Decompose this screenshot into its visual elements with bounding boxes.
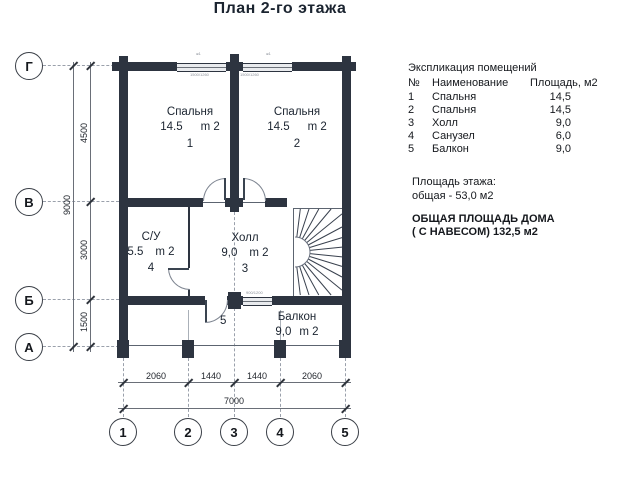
room-unit: m 2 (155, 245, 174, 260)
room-name: С/У (120, 230, 182, 245)
row-area: 6,0 (503, 130, 571, 142)
room-bedroom1: Спальня 14.5 m 2 1 (143, 105, 237, 152)
room-number-balcony: 5 (220, 315, 226, 327)
room-unit: m 2 (201, 120, 220, 135)
door-leaf-bedroom2 (243, 178, 245, 200)
axis-label: 3 (230, 425, 237, 440)
room-name: Спальня (143, 105, 237, 120)
dim-line-bottom-outer (118, 408, 351, 409)
axis-label: В (24, 195, 33, 210)
room-name: Спальня (250, 105, 344, 120)
row-name: Холл (432, 117, 458, 129)
room-balcony: Балкон 9,0 m 2 (262, 310, 332, 340)
row-num: 3 (408, 117, 414, 129)
room-bedroom2: Спальня 14.5 m 2 2 (250, 105, 344, 152)
dim-3000: 3000 (79, 234, 89, 266)
row-name: Спальня (432, 104, 476, 116)
axis-row-b: Б (15, 286, 43, 314)
axis-label: Б (24, 293, 33, 308)
door-threshold (203, 202, 225, 203)
axis-col-2: 2 (174, 418, 202, 446)
balcony-post (117, 340, 129, 358)
total-area-value: ( С НАВЕСОМ) 132,5 м2 (412, 226, 538, 238)
dim-4500: 4500 (79, 117, 89, 149)
room-unit: m 2 (299, 325, 318, 340)
dim-7000: 7000 (218, 396, 250, 406)
wall-top-segment (112, 62, 177, 71)
door-threshold (243, 202, 265, 203)
balcony-post (274, 340, 286, 358)
row-num: 2 (408, 104, 414, 116)
wall-row-v-segment (225, 198, 243, 207)
window-mark: ж1 (266, 51, 271, 56)
wall-row-b-segment (119, 296, 205, 305)
row-area: 14,5 (503, 104, 571, 116)
floor-plan: ж1 ж1 1500/1260 1500/1260 900/1200 Спаль… (0, 0, 640, 480)
row-name: Спальня (432, 91, 476, 103)
col-area: Площадь, м2 (530, 77, 598, 89)
room-area: 14.5 (267, 120, 289, 135)
wall-top-segment (292, 62, 356, 71)
dim-2060-b: 2060 (296, 371, 328, 381)
wall-right (342, 56, 351, 352)
room-name: Холл (214, 231, 276, 246)
room-unit: m 2 (308, 120, 327, 135)
room-area: 9,0 (275, 325, 291, 340)
room-number: 1 (143, 137, 237, 152)
wall-cross-post (228, 292, 241, 309)
axis-label: 1 (119, 425, 126, 440)
row-name: Санузел (432, 130, 475, 142)
floor-area-value: общая - 53,0 м2 (412, 190, 493, 202)
axis-col-3: 3 (220, 418, 248, 446)
wall-row-v-segment (119, 198, 203, 207)
row-num: 1 (408, 91, 414, 103)
room-name: Балкон (262, 310, 332, 325)
dim-1440-a: 1440 (195, 371, 227, 381)
window-symbol (177, 63, 226, 72)
row-num: 5 (408, 143, 414, 155)
axis-row-g: Г (15, 52, 43, 80)
axis-label: Г (25, 59, 32, 74)
window-mark: ж1 (196, 51, 201, 56)
room-number: 4 (120, 261, 182, 276)
row-area: 9,0 (503, 117, 571, 129)
dim-2060-a: 2060 (140, 371, 172, 381)
col-name: Наименование (432, 77, 508, 89)
window-symbol (243, 63, 292, 72)
door-size-label: 900/1200 (246, 290, 263, 295)
room-hall: Холл 9,0 m 2 3 (214, 231, 276, 277)
room-bathroom: С/У 5.5 m 2 4 (120, 230, 182, 276)
window-size-label: 1500/1260 (190, 72, 209, 77)
wall-row-b-segment (272, 296, 351, 305)
dim-1500: 1500 (79, 306, 89, 338)
axis-col-4: 4 (266, 418, 294, 446)
room-area: 5.5 (127, 245, 143, 260)
explication-title: Экспликация помещений (408, 62, 537, 74)
row-area: 9,0 (503, 143, 571, 155)
door-leaf-balcony (205, 300, 207, 322)
dim-line-left-inner (90, 62, 91, 352)
wall-bathroom-stub (188, 289, 190, 296)
total-area-label: ОБЩАЯ ПЛОЩАДЬ ДОМА (412, 213, 555, 225)
room-number: 2 (250, 137, 344, 152)
room-unit: m 2 (249, 246, 268, 261)
balcony-post (182, 340, 194, 358)
axis-label: 5 (341, 425, 348, 440)
wall-bathroom (188, 207, 190, 268)
door-leaf-bedroom1 (224, 178, 226, 200)
axis-line-a (43, 346, 119, 347)
axis-label: А (24, 340, 33, 355)
axis-col-1: 1 (109, 418, 137, 446)
spiral-stair (293, 208, 343, 296)
floor-area-label: Площадь этажа: (412, 176, 496, 188)
room-area: 9,0 (221, 246, 237, 261)
dim-line-left-outer (73, 62, 74, 352)
balcony-edge (119, 345, 351, 346)
axis-line-b (43, 299, 119, 300)
room-number: 3 (214, 262, 276, 277)
axis-line-v (43, 201, 119, 202)
row-name: Балкон (432, 143, 469, 155)
window-symbol (243, 297, 272, 306)
door-arc-bedroom1 (203, 178, 226, 201)
dim-9000: 9000 (62, 189, 72, 221)
axis-line-g (43, 65, 119, 66)
axis-row-v: В (15, 188, 43, 216)
door-arc-bedroom2 (243, 178, 266, 201)
window-size-label: 1500/1260 (240, 72, 259, 77)
axis-col-5: 5 (331, 418, 359, 446)
row-num: 4 (408, 130, 414, 142)
row-area: 14,5 (503, 91, 571, 103)
col-num: № (408, 77, 420, 89)
axis-label: 2 (184, 425, 191, 440)
balcony-post (339, 340, 351, 358)
dim-1440-b: 1440 (241, 371, 273, 381)
axis-label: 4 (276, 425, 283, 440)
axis-row-a: А (15, 333, 43, 361)
room-area: 14.5 (160, 120, 182, 135)
wall-row-v-segment (265, 198, 287, 207)
